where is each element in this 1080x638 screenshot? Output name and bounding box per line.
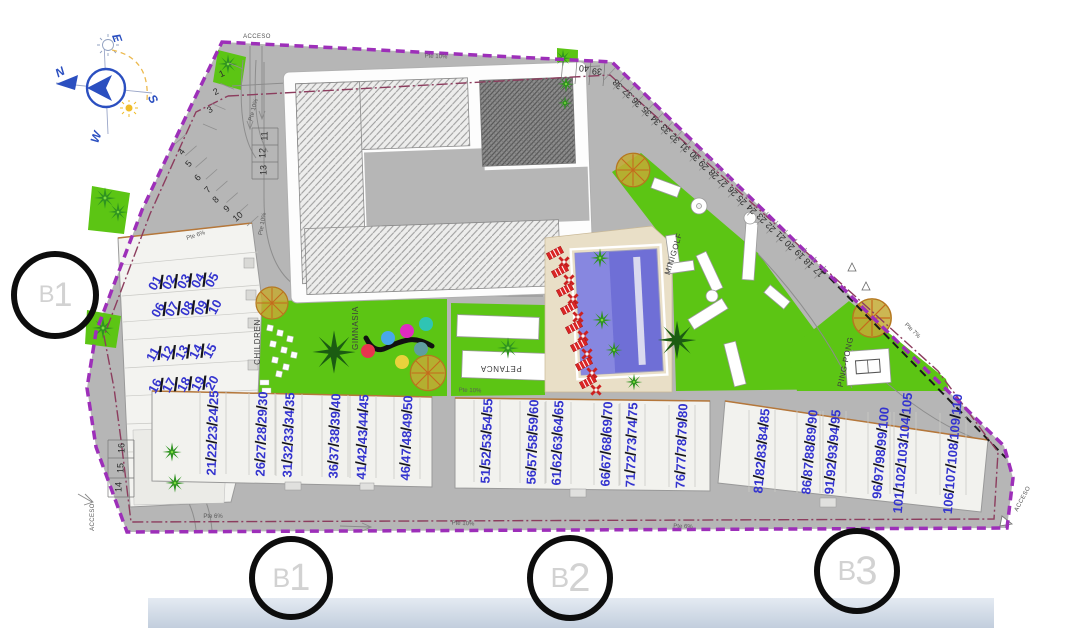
site-plan: ACCESO ACCESO ACCESO CHILDREN GIMNASIA P… <box>0 0 1080 638</box>
marker-digit: 3 <box>855 549 876 594</box>
pingpong-court <box>845 349 891 386</box>
marker-digit: 2 <box>568 556 589 601</box>
compass-rose <box>56 34 152 134</box>
dark-roof-wing <box>480 77 576 166</box>
block-marker-b1-left: B1 <box>11 251 99 339</box>
block-marker-b1: B1 <box>249 536 333 620</box>
marker-letter: B <box>39 281 54 309</box>
north-arrow <box>56 75 78 90</box>
marker-letter: B <box>551 562 569 594</box>
block-marker-b3: B3 <box>814 528 900 614</box>
marker-letter: B <box>273 563 290 594</box>
sun-icon <box>103 40 114 51</box>
sunset-icon <box>126 105 133 112</box>
marker-digit: 1 <box>289 557 309 600</box>
site-plan-drawing <box>0 0 1080 638</box>
marker-digit: 1 <box>53 276 71 315</box>
marker-letter: B <box>838 555 856 587</box>
block-marker-b2: B2 <box>527 535 613 621</box>
